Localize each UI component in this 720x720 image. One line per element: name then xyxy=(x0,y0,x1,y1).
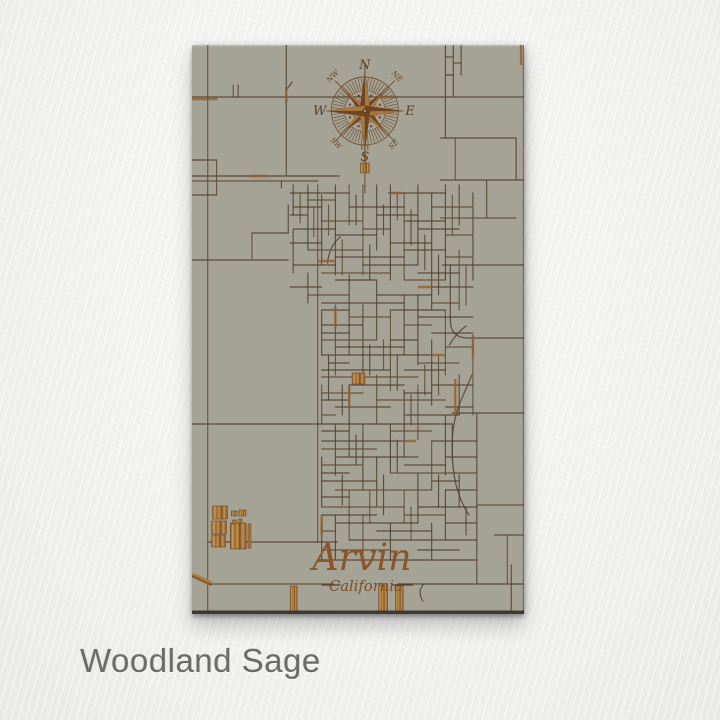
map-title-city: Arvin xyxy=(309,536,411,579)
board-right-edge xyxy=(523,45,524,614)
board-top-highlight xyxy=(192,45,524,47)
street-map-engraving: N E S W NW NE SE SW Arvin California xyxy=(192,45,524,614)
compass-west-label: W xyxy=(313,104,328,119)
compass-north-label: N xyxy=(358,58,371,73)
wood-map-panel: N E S W NW NE SE SW Arvin California xyxy=(192,45,524,614)
compass-east-label: E xyxy=(404,104,415,119)
map-title-state: California xyxy=(329,577,403,595)
board-bottom-edge xyxy=(192,611,524,615)
finish-name-label: Woodland Sage xyxy=(80,642,321,680)
product-photo: N E S W NW NE SE SW Arvin California Woo… xyxy=(0,0,720,720)
